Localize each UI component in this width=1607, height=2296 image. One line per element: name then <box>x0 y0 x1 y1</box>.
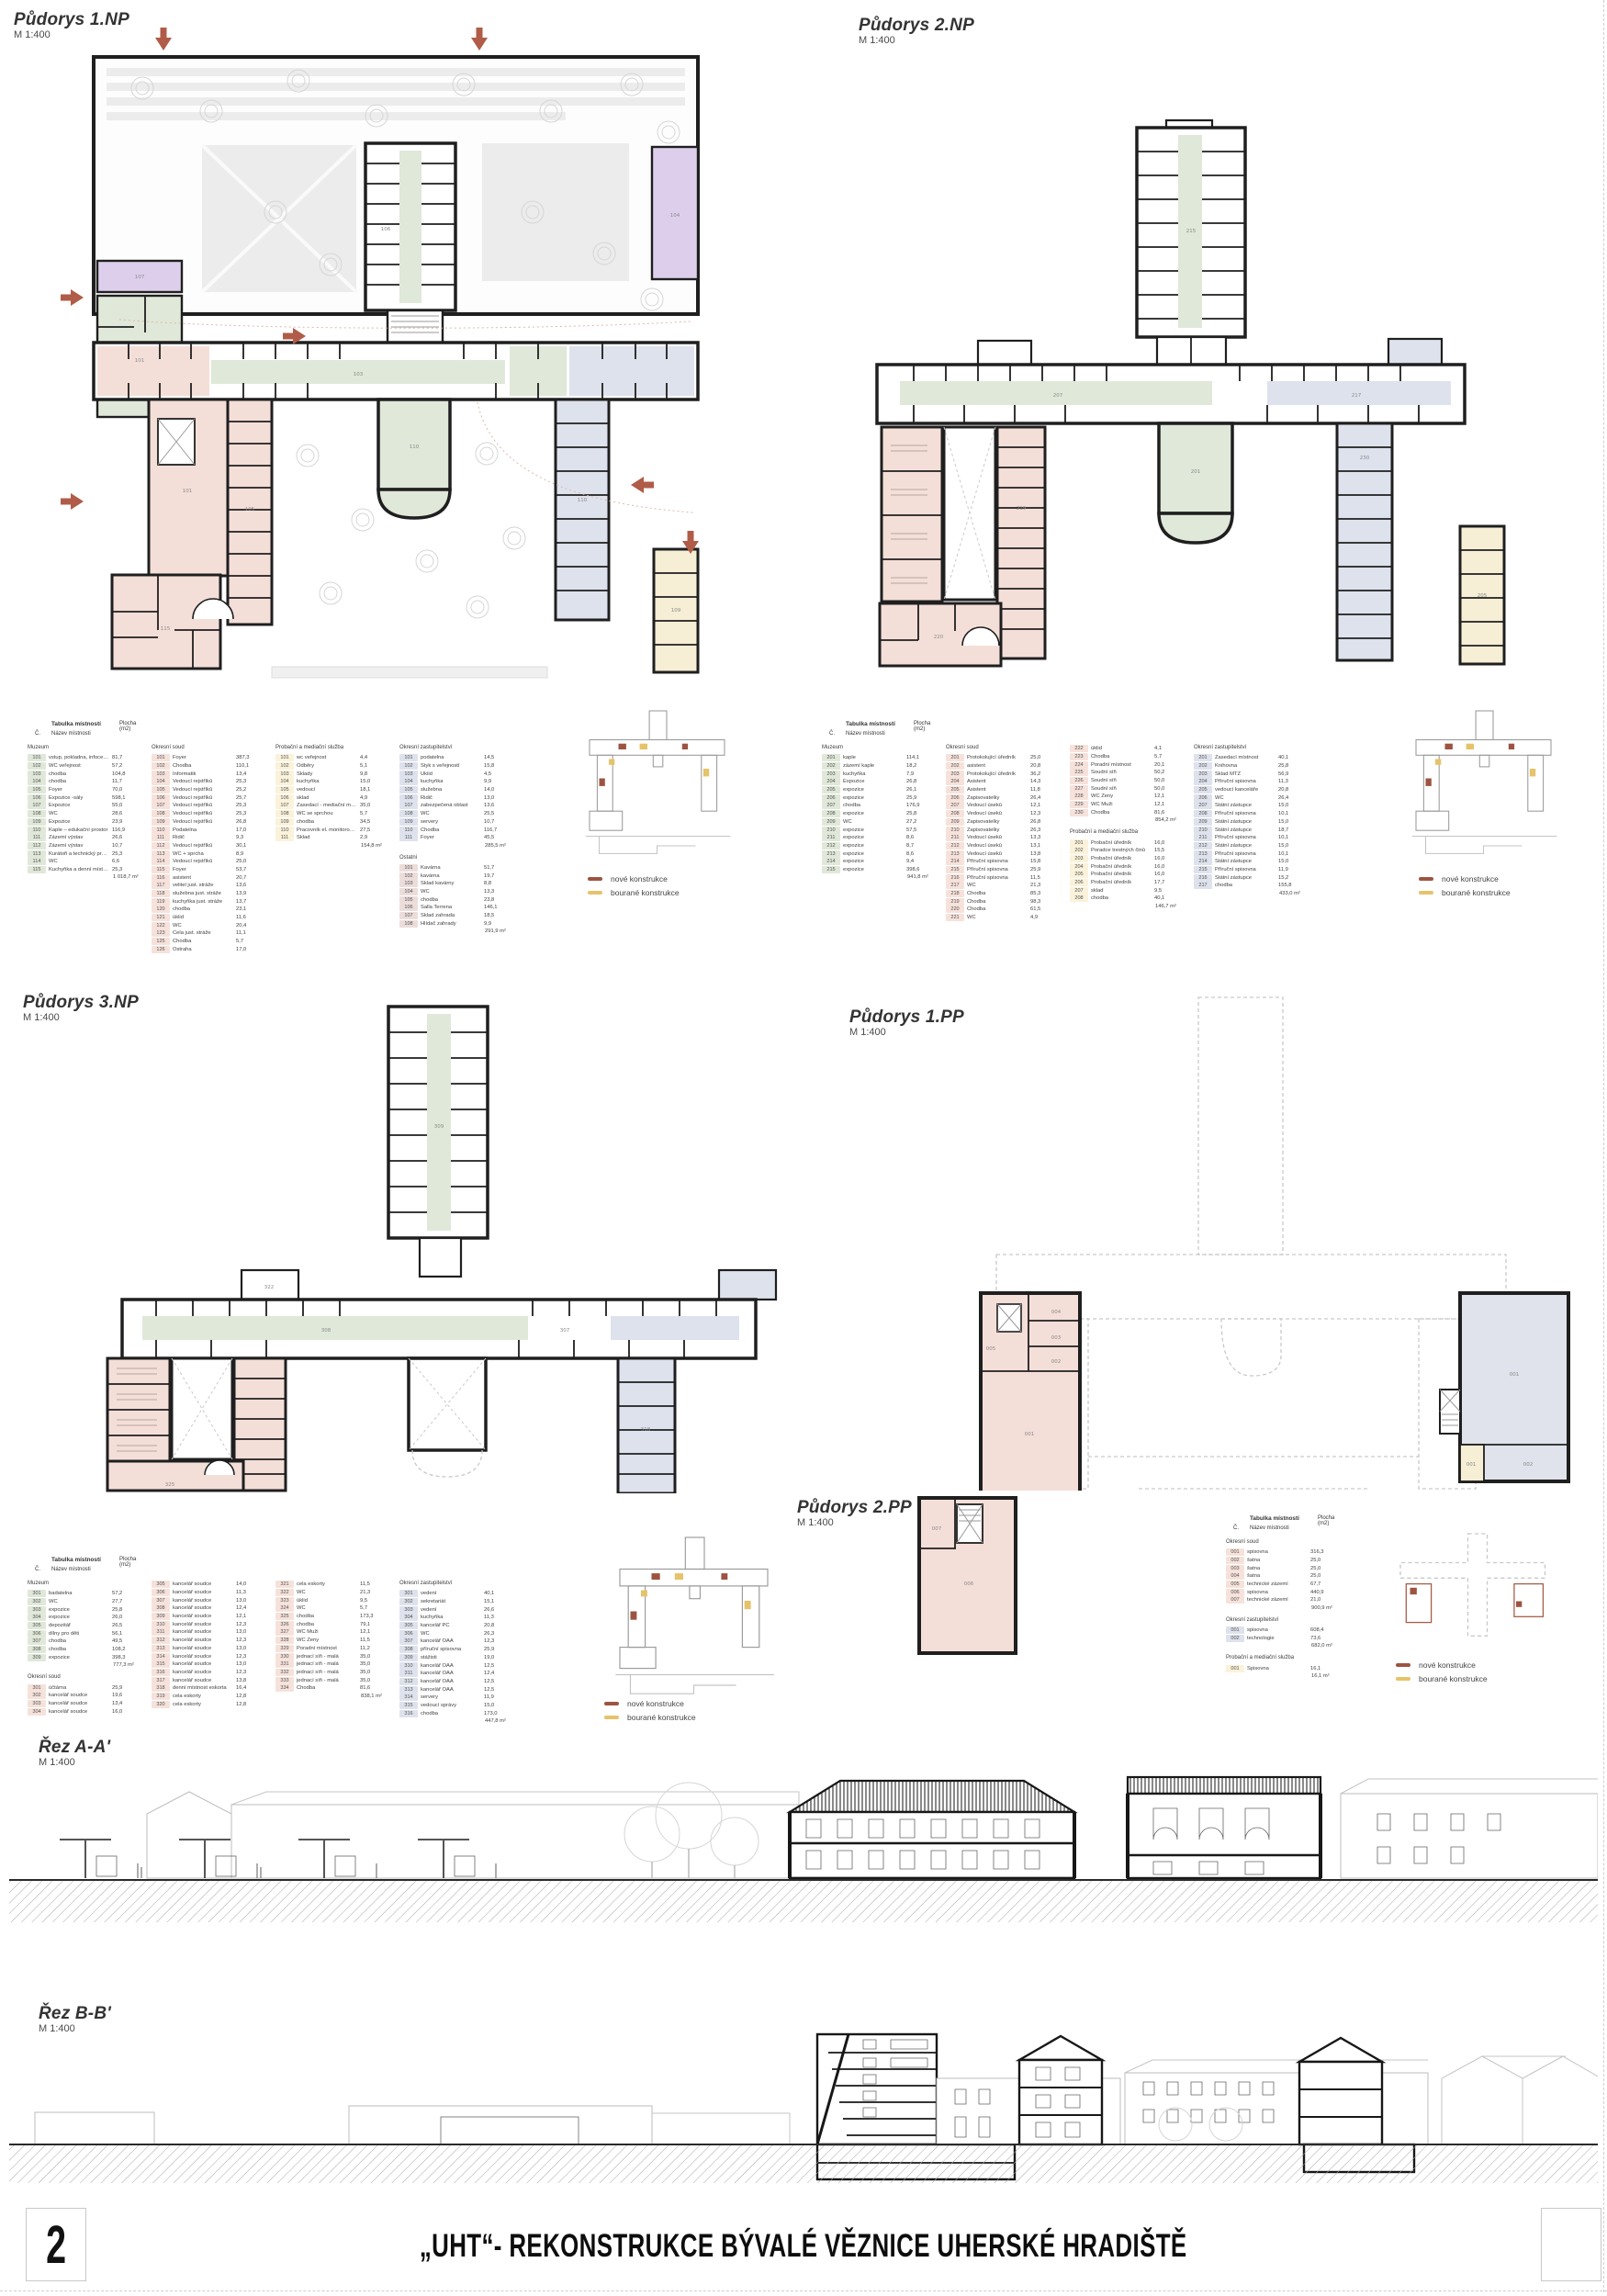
room-name: Chodba <box>967 906 1028 912</box>
room-number-label: 001 <box>1467 1462 1477 1468</box>
room-name: Zasedací - mediační místnost <box>297 803 357 808</box>
room-area: 25,0 <box>1310 1558 1338 1563</box>
room-area: 4,9 <box>1030 915 1058 920</box>
room-name: kaple <box>843 755 904 760</box>
table-row: 204Expozice26,8 <box>822 778 934 786</box>
table-row: 119kuchyňka just. stráže13,7 <box>152 897 264 906</box>
room-table-2np: Tabulka místností Č. Název místnosti Plo… <box>822 721 1306 928</box>
table-row: 125Chodba5,7 <box>152 938 264 946</box>
table-row: 206expozice25,9 <box>822 793 934 802</box>
room-number-chip: 302 <box>28 1598 46 1605</box>
table-row: 225Soudní síň50,2 <box>1070 769 1182 777</box>
table-row: 207sklad9,5 <box>1070 886 1182 895</box>
room-number-chip: 103 <box>275 771 294 778</box>
table-row: 303expozice25,8 <box>28 1605 140 1614</box>
table-row: 210Státní zástupce18,7 <box>1194 826 1306 834</box>
room-name: kancelář soudce <box>173 1605 233 1611</box>
room-area: 51,7 <box>484 865 511 871</box>
room-group: Okresní soud301účtárna25,9302kancelář so… <box>28 1674 140 1716</box>
room-area: 12,8 <box>236 1702 264 1707</box>
table-row: 204Příruční spisovna11,3 <box>1194 778 1306 786</box>
room-area: 25,0 <box>1310 1573 1338 1579</box>
room-name: sklad <box>1091 888 1152 894</box>
group-total-area: 900,9 m² <box>1311 1605 1338 1611</box>
group-total-area: 285,5 m² <box>485 843 511 849</box>
table-row: 209WC27,2 <box>822 818 934 827</box>
room-number-chip: 101 <box>275 754 294 761</box>
table-row: 104WC13,3 <box>399 888 511 896</box>
legend-demolished: bourané konstrukce <box>588 888 680 897</box>
table-row: 219Chodba98,3 <box>946 897 1058 906</box>
room-name: Státní zástupce <box>1215 859 1275 864</box>
ground <box>9 1880 1598 1922</box>
table-row: 118služebna just. stráže13,9 <box>152 890 264 898</box>
table-row: 109chodba34,5 <box>275 818 388 827</box>
room-area: 35,0 <box>360 1661 388 1667</box>
room-number-chip: 309 <box>28 1654 46 1661</box>
room-area: 25,9 <box>484 1647 511 1652</box>
room-name: Spisovna <box>1247 1666 1308 1671</box>
room-area: 9,9 <box>484 921 511 927</box>
room-area: 8,7 <box>906 843 934 849</box>
table-row: 323úklid9,5 <box>275 1596 388 1604</box>
room-name: Poradce trestných činů <box>1091 848 1152 853</box>
new-construction-swatch <box>1396 1663 1410 1667</box>
room-number-label: 106 <box>381 227 391 232</box>
room-group: Probační a mediační služba101wc veřejnos… <box>275 745 388 849</box>
room-number-chip: 204 <box>946 778 964 785</box>
room-name: kancelář soudce <box>173 1590 233 1595</box>
room-number-chip: 305 <box>28 1622 46 1629</box>
room-name: Sklady <box>297 771 357 777</box>
room-number-chip: 102 <box>399 872 418 880</box>
room-number-chip: 203 <box>1194 771 1212 778</box>
room-name: expozice <box>843 795 904 801</box>
room-number-chip: 207 <box>946 802 964 809</box>
room-area: 15,0 <box>1278 819 1306 825</box>
room-name: WC <box>967 915 1028 920</box>
table-row: 302sekretariát15,1 <box>399 1598 511 1606</box>
room-number-chip: 301 <box>399 1590 418 1597</box>
room-name: kancelář soudce <box>49 1693 109 1698</box>
room-number-chip: 109 <box>28 818 46 826</box>
table-row: 208Příruční spisovna10,1 <box>1194 810 1306 818</box>
room-number-chip: 204 <box>822 778 840 785</box>
room-name: spisovna <box>1247 1590 1308 1595</box>
table-row: 213Příruční spisovna10,1 <box>1194 850 1306 858</box>
room-name: Příruční spisovna <box>1215 867 1275 872</box>
room-number-chip: 205 <box>822 786 840 793</box>
room-group-name: Muzeum <box>28 745 140 754</box>
room-name: úklid <box>297 1598 357 1604</box>
room-area: 11,6 <box>236 915 264 920</box>
room-number-chip: 306 <box>152 1589 170 1596</box>
room-name: Probační úředník <box>1091 872 1152 877</box>
room-area: 20,4 <box>236 923 264 929</box>
room-number-chip: 120 <box>152 906 170 913</box>
room-number-chip: 206 <box>1194 794 1212 802</box>
room-name: servery <box>421 819 481 825</box>
room-name: kancelář OAA <box>421 1638 481 1644</box>
room-area: 12,3 <box>484 1638 511 1644</box>
room-area: 4,9 <box>360 795 388 801</box>
room-number-chip: 106 <box>399 904 418 911</box>
room-area: 18,7 <box>1278 827 1306 833</box>
room-number-chip: 108 <box>399 810 418 817</box>
room-name: Kaple – edukační prostor <box>49 827 109 833</box>
room-area: 11,3 <box>484 1615 511 1620</box>
table-row: 221WC4,9 <box>946 914 1058 922</box>
room-area: 15,8 <box>484 763 511 769</box>
table-row: 302kancelář soudce19,6 <box>28 1692 140 1700</box>
room-number-chip: 210 <box>1194 827 1212 834</box>
table-row: 114WC6,6 <box>28 858 140 866</box>
room-name: Probační úředník <box>1091 840 1152 846</box>
table-row: 312kancelář soudce12,3 <box>152 1637 264 1645</box>
ground <box>9 2144 1598 2183</box>
key-plan-3np <box>601 1526 785 1696</box>
table-row: 215expozice398,6 <box>822 866 934 874</box>
room-area: 28,6 <box>112 811 140 816</box>
table-row: 330jednací síň - malá35,0 <box>275 1652 388 1660</box>
room-number-chip: 103 <box>152 771 170 778</box>
table-row: 120chodba23,1 <box>152 906 264 914</box>
room-group-name: Probační a mediační služba <box>1070 829 1182 838</box>
room-number-chip: 111 <box>28 834 46 841</box>
table-row: 209Zapisovatelky26,8 <box>946 818 1058 827</box>
cell-wing <box>1137 120 1245 365</box>
room-number-label: 318 <box>641 1427 651 1433</box>
table-row: 111Sklad2,9 <box>275 834 388 842</box>
room-area: 8,6 <box>906 835 934 840</box>
table-row: 216Příruční spisovna11,5 <box>946 873 1058 882</box>
room-number-chip: 308 <box>28 1646 46 1653</box>
room-group: 305kancelář soudce14,0306kancelář soudce… <box>152 1581 264 1708</box>
room-number-chip: 201 <box>946 754 964 761</box>
room-area: 316,3 <box>1310 1549 1338 1555</box>
room-number-chip: 321 <box>275 1581 294 1588</box>
room-area: 14,0 <box>236 1581 264 1587</box>
table-row: 217chodba155,8 <box>1194 882 1306 890</box>
room-group: Okresní soud201Protokolující úředník25,0… <box>946 745 1058 921</box>
table-row: 117velitel just. stráže13,6 <box>152 882 264 890</box>
room-group: Okresní zastupitelství101podatelna14,510… <box>399 745 511 849</box>
room-area: 12,5 <box>484 1663 511 1669</box>
room-name: jednací síň - malá <box>297 1661 357 1667</box>
room-name: chodba <box>297 819 357 825</box>
room-number-chip: 306 <box>28 1630 46 1638</box>
group-total-area: 433,0 m² <box>1279 891 1306 896</box>
room-area: 598,1 <box>112 795 140 801</box>
table-row: 203Sklad MTZ56,9 <box>1194 770 1306 778</box>
room-area: 15,0 <box>360 779 388 784</box>
room-number-chip: 104 <box>399 778 418 785</box>
room-area: 13,0 <box>236 1646 264 1651</box>
room-area: 4,1 <box>1154 746 1182 751</box>
room-number-chip: 302 <box>399 1598 418 1605</box>
room-area: 13,4 <box>112 1701 140 1706</box>
table-row: 305kancelář PČ20,8 <box>399 1622 511 1630</box>
room-number-chip: 315 <box>152 1660 170 1668</box>
table-header: Tabulka místností Č. Název místnosti Plo… <box>28 1557 511 1577</box>
room-name: WC se sprchou <box>297 811 357 816</box>
room-area: 608,4 <box>1310 1627 1338 1633</box>
room-area: 9,3 <box>236 835 264 840</box>
table-row: 108WC28,6 <box>28 810 140 818</box>
room-name: WC Ženy <box>297 1638 357 1643</box>
room-name: dílny pro děti <box>49 1631 109 1637</box>
room-area: 13,1 <box>1030 843 1058 849</box>
table-header: Tabulka místností Č. Název místnosti Plo… <box>28 721 511 741</box>
sheet-right-border <box>1603 0 1604 2292</box>
group-total-area: 1 018,7 m² <box>113 874 140 880</box>
table-row: 108Vedoucí rejstříků25,3 <box>152 810 264 818</box>
room-number-chip: 333 <box>275 1677 294 1684</box>
room-number-chip: 205 <box>1194 786 1212 793</box>
room-name: kancelář soudce <box>173 1581 233 1587</box>
room-number-chip: 314 <box>152 1653 170 1660</box>
floor-plan-3np: 309308307325318322 <box>23 990 803 1493</box>
table-row: 205Asistent11,8 <box>946 786 1058 794</box>
table-row: 211expozice8,6 <box>822 834 934 842</box>
room-area: 114,1 <box>906 755 934 760</box>
room-name: Chodba <box>173 763 233 769</box>
room-area: 26,6 <box>484 1607 511 1613</box>
chapel-void <box>409 1358 486 1477</box>
room-area: 49,5 <box>112 1638 140 1644</box>
legend-demolished: bourané konstrukce <box>1419 888 1511 897</box>
table-row: 215Příruční spisovna25,9 <box>946 866 1058 874</box>
room-area: 25,2 <box>236 787 264 793</box>
room-area: 61,5 <box>1030 906 1058 912</box>
table-row: 207Vedoucí úseků12,1 <box>946 802 1058 810</box>
room-number-chip: 226 <box>1070 777 1088 784</box>
table-row: 205Probační úředník16,0 <box>1070 871 1182 879</box>
room-area: 13,3 <box>484 889 511 895</box>
room-number-chip: 314 <box>399 1694 418 1701</box>
room-number-chip: 326 <box>275 1621 294 1628</box>
table-row: 103Sklad kavárny8,8 <box>399 880 511 888</box>
room-name: Vedoucí rejstříků <box>173 795 233 801</box>
room-name: šatna <box>1247 1558 1308 1563</box>
room-name: vedení <box>421 1607 481 1613</box>
room-number-chip: 111 <box>275 834 294 841</box>
table-row: 222úklid4,1 <box>1070 745 1182 753</box>
room-number-chip: 213 <box>822 850 840 858</box>
table-row: 201Probační úředník16,0 <box>1070 838 1182 847</box>
room-area: 25,9 <box>1030 867 1058 872</box>
plan-2pp-title: Půdorys 2.PP <box>797 1499 912 1517</box>
room-area: 15,0 <box>1278 843 1306 849</box>
table-row: 202zázemí kaple18,2 <box>822 762 934 771</box>
room-area: 25,3 <box>112 851 140 857</box>
table-row: 213expozice8,6 <box>822 850 934 858</box>
room-name: WC + sprcha <box>173 851 233 857</box>
room-number-chip: 330 <box>275 1653 294 1660</box>
legend-pp: nové konstrukce bourané konstrukce <box>1396 1660 1488 1683</box>
room-area: 40,1 <box>1154 895 1182 901</box>
room-area: 10,1 <box>1278 851 1306 857</box>
room-area: 13,0 <box>236 1598 264 1604</box>
room-name: WC <box>1215 795 1275 801</box>
room-area: 40,1 <box>1278 755 1306 760</box>
room-area: 26,1 <box>906 787 934 793</box>
room-area: 11,2 <box>360 1646 388 1651</box>
room-area: 14,3 <box>1030 779 1058 784</box>
table-header: Tabulka místností Č. Název místnosti Plo… <box>1226 1515 1354 1536</box>
room-number-label: 003 <box>1051 1335 1062 1341</box>
room-area: 25,3 <box>236 811 264 816</box>
table-row: 103chodba104,8 <box>28 770 140 778</box>
table-row: 325chodba173,3 <box>275 1613 388 1621</box>
room-area: 440,9 <box>1310 1590 1338 1595</box>
room-name: Vedoucí úseků <box>967 835 1028 840</box>
room-name: kancelář soudce <box>173 1629 233 1635</box>
room-number-chip: 312 <box>399 1678 418 1685</box>
table-row: 318denní místnost eskorta16,4 <box>152 1684 264 1693</box>
table-row: 104Vedoucí rejstříků25,3 <box>152 778 264 786</box>
room-area: 4,5 <box>484 771 511 777</box>
room-name: expozice <box>843 835 904 840</box>
room-area: 16,1 <box>1310 1666 1338 1671</box>
table-row: 305kancelář soudce14,0 <box>152 1581 264 1589</box>
table-row: 003šatna25,0 <box>1226 1564 1338 1572</box>
room-number-chip: 107 <box>399 802 418 809</box>
room-name: Knihovna <box>1215 763 1275 769</box>
room-name: chodba <box>1215 883 1275 888</box>
table-row: 229WC Muži12,1 <box>1070 801 1182 809</box>
room-name: kancelář soudce <box>173 1670 233 1675</box>
room-number-chip: 105 <box>152 786 170 793</box>
room-area: 16,0 <box>1154 864 1182 870</box>
room-area: 104,8 <box>112 771 140 777</box>
room-name: Chodba <box>967 899 1028 905</box>
room-name: Chodba <box>297 1685 357 1691</box>
room-area: 25,8 <box>1278 763 1306 769</box>
room-number-chip: 007 <box>1226 1596 1244 1604</box>
room-group-name: Okresní zastupitelství <box>1194 745 1306 754</box>
room-name: kancelář soudce <box>173 1598 233 1604</box>
table-row: 007technické zázemí21,0 <box>1226 1596 1338 1604</box>
room-name: WC <box>49 859 109 864</box>
room-area: 40,1 <box>484 1591 511 1596</box>
room-number-chip: 230 <box>1070 809 1088 816</box>
table-row: 316chodba173,0 <box>399 1709 511 1717</box>
room-area: 25,3 <box>236 779 264 784</box>
room-area: 25,0 <box>1030 755 1058 760</box>
room-number-chip: 109 <box>275 818 294 826</box>
room-area: 23,9 <box>112 819 140 825</box>
room-name: jednací síň - malá <box>297 1678 357 1683</box>
room-number-chip: 004 <box>1226 1572 1244 1580</box>
table-row: 116asistent20,7 <box>152 873 264 882</box>
room-area: 20,1 <box>1154 762 1182 768</box>
room-area: 5,7 <box>236 939 264 944</box>
table-row: 218Chodba85,3 <box>946 890 1058 898</box>
room-name: Zapisovatelky <box>967 819 1028 825</box>
table-row: 108WC25,5 <box>399 810 511 818</box>
room-area: 35,0 <box>360 1670 388 1675</box>
room-area: 15,8 <box>1030 859 1058 864</box>
table-row: 333jednací síň - malá35,0 <box>275 1676 388 1684</box>
group-total-area: 941,8 m² <box>907 874 934 880</box>
room-number-chip: 107 <box>399 912 418 919</box>
room-area: 13,6 <box>484 803 511 808</box>
room-name: Hlídač zahrady <box>421 921 481 927</box>
room-name: spisovna <box>1247 1549 1308 1555</box>
room-number-chip: 207 <box>1070 887 1088 895</box>
room-number-label: 107 <box>135 275 145 280</box>
room-number-chip: 206 <box>1070 879 1088 886</box>
room-number-chip: 126 <box>152 946 170 953</box>
room-name: Soudní síň <box>1091 770 1152 775</box>
room-area: 12,5 <box>484 1679 511 1684</box>
room-name: Chodba <box>421 827 481 833</box>
table-row: 005technické zázemí67,7 <box>1226 1581 1338 1589</box>
room-name: kavárna <box>421 873 481 879</box>
table-row: 107Vedoucí rejstříků25,3 <box>152 802 264 810</box>
key-plan-2np <box>1403 700 1564 870</box>
legend-3np: nové konstrukce bourané konstrukce <box>604 1699 696 1722</box>
legend-new: nové konstrukce <box>1419 874 1511 884</box>
table-row: 105vedoucí18,1 <box>275 786 388 794</box>
room-number-chip: 217 <box>946 882 964 889</box>
table-row: 111Foyer45,5 <box>399 834 511 842</box>
room-name: Sklad zahrada <box>421 913 481 918</box>
room-number-chip: 204 <box>1194 778 1212 785</box>
room-name: Cela just. stráže <box>173 930 233 936</box>
room-number-label: 109 <box>671 608 681 613</box>
room-number-chip: 118 <box>152 890 170 897</box>
room-number-chip: 105 <box>28 786 46 793</box>
new-construction-swatch <box>604 1702 619 1705</box>
room-number-chip: 104 <box>28 778 46 785</box>
table-row: 106sklad4,9 <box>275 793 388 802</box>
room-number-chip: 115 <box>152 866 170 873</box>
room-area: 10,7 <box>484 819 511 825</box>
table-row: 126Ostraha17,0 <box>152 946 264 954</box>
room-area: 9,5 <box>360 1598 388 1604</box>
room-area: 13,8 <box>236 1678 264 1683</box>
room-name: expozice <box>49 1607 109 1613</box>
room-number-chip: 303 <box>28 1606 46 1614</box>
room-number-chip: 107 <box>28 802 46 809</box>
room-number-chip: 219 <box>946 898 964 906</box>
room-name: chodba <box>297 1622 357 1627</box>
room-name: WC <box>49 1599 109 1604</box>
room-name: Vedoucí úseků <box>967 803 1028 808</box>
room-table-1np: Tabulka místností Č. Název místnosti Plo… <box>28 721 511 960</box>
room-name: WC Muži <box>1091 802 1152 807</box>
room-number-chip: 202 <box>822 762 840 770</box>
room-name: stážisti <box>421 1655 481 1660</box>
table-row: 217WC21,3 <box>946 882 1058 890</box>
room-name: expozice <box>843 827 904 833</box>
table-row: 209Státní zástupce15,0 <box>1194 818 1306 827</box>
room-name: expozice <box>49 1615 109 1620</box>
room-name: Příruční spisovna <box>967 875 1028 881</box>
table-row: 211Příruční spisovna10,1 <box>1194 834 1306 842</box>
room-area: 35,0 <box>360 1678 388 1683</box>
room-table-pp: Tabulka místností Č. Název místnosti Plo… <box>1226 1515 1354 1685</box>
room-name: spisovna <box>1247 1627 1308 1633</box>
room-area: 85,3 <box>1030 891 1058 896</box>
room-area: 13,8 <box>1030 851 1058 857</box>
room-group-name: Okresní zastupitelství <box>1226 1617 1338 1626</box>
room-name: Zázemí výstav <box>49 843 109 849</box>
legend-demolished: bourané konstrukce <box>1396 1674 1488 1683</box>
room-area: 26,0 <box>112 1615 140 1620</box>
